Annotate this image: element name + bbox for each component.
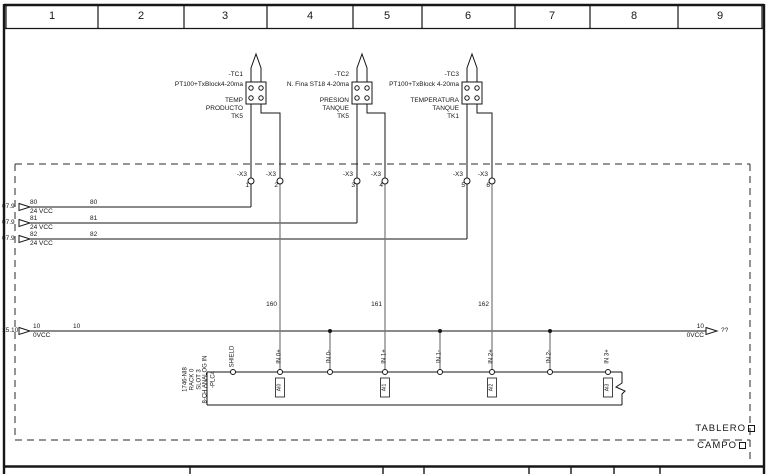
wire-160: 160 xyxy=(247,301,277,309)
plc-ch1-mark: AI1 xyxy=(382,380,389,396)
plc-in3p-label: IN 3+ xyxy=(604,339,613,373)
common-src: 15.10 xyxy=(2,327,18,335)
wire-162: 162 xyxy=(459,301,489,309)
common-end-volt: 0VCC xyxy=(666,332,704,340)
zone-field-label: CAMPO xyxy=(637,440,737,451)
plc-shield-label: SHIELD xyxy=(229,339,238,375)
ruler-cell-6: 6 xyxy=(448,10,488,22)
tc3-desc-2: TANQUE xyxy=(339,105,459,113)
schematic-sheet: 1 2 3 4 5 6 7 8 9 -TC1 PT100+TxBlock4-20… xyxy=(0,0,768,474)
ruler-cell-3: 3 xyxy=(205,10,245,22)
plc-module-box xyxy=(207,372,625,405)
supply-81-src: 07.9 xyxy=(2,219,15,227)
plc-tag: -PLC4 xyxy=(209,344,218,414)
x3-4-num: 4 xyxy=(353,182,383,190)
x3-6-name: -X3 xyxy=(458,171,488,179)
wire-161: 161 xyxy=(352,301,382,309)
supply-82-wire: 82 xyxy=(30,231,37,239)
common-volt: 0VCC xyxy=(33,332,50,340)
supply-80-src: 07.9 xyxy=(2,203,15,211)
zone-panel-marker xyxy=(748,425,755,432)
ruler-cell-5: 5 xyxy=(367,10,407,22)
common-dest: ?? xyxy=(721,327,728,335)
ruler-cell-4: 4 xyxy=(290,10,330,22)
x3-1-name: -X3 xyxy=(217,171,247,179)
tc3-type: PT100+TxBlock 4-20ma xyxy=(339,81,459,89)
tc1-tag: -TC1 xyxy=(123,71,243,79)
ruler-cell-9: 9 xyxy=(700,10,740,22)
tc2-desc-2: TANQUE xyxy=(229,105,349,113)
tc1-desc-3: TK5 xyxy=(123,113,243,121)
plc-in2m-label: IN 2- xyxy=(546,339,555,373)
x3-2-name: -X3 xyxy=(246,171,276,179)
ruler-cell-7: 7 xyxy=(532,10,572,22)
common-mid: 10 xyxy=(73,323,80,331)
supply-81-mid: 81 xyxy=(90,215,97,223)
tc1-desc-2: PRODUCTO xyxy=(123,105,243,113)
tc1-desc-1: TEMP xyxy=(123,97,243,105)
wires-gray xyxy=(280,184,550,370)
plc-in1p-label: IN 1+ xyxy=(381,339,390,373)
tc3-tag: -TC3 xyxy=(339,71,459,79)
tc2-desc-1: PRESION xyxy=(229,97,349,105)
supply-80-wire: 80 xyxy=(30,199,37,207)
plc-ch3-mark: AI3 xyxy=(605,380,612,396)
tc2-tag: -TC2 xyxy=(229,71,349,79)
ruler-cell-2: 2 xyxy=(121,10,161,22)
supply-82-src: 07.9 xyxy=(2,235,15,243)
zone-field-marker xyxy=(739,442,746,449)
plc-ch0-mark: AI0 xyxy=(277,380,284,396)
plc-in2p-label: IN 2+ xyxy=(488,339,497,373)
zone-panel-label: TABLERO xyxy=(646,423,746,434)
x3-4-name: -X3 xyxy=(351,171,381,179)
supply-81-wire: 81 xyxy=(30,215,37,223)
supply-82-volt: 24 VCC xyxy=(30,240,53,248)
plc-in0m-label: IN 0- xyxy=(326,339,335,373)
tc3-desc-1: TEMPERATURA xyxy=(339,97,459,105)
supply-80-mid: 80 xyxy=(90,199,97,207)
panel-boundary-dashed xyxy=(15,164,750,462)
plc-ch2-mark: AI2 xyxy=(489,380,496,396)
plc-in0p-label: IN 0+ xyxy=(276,339,285,373)
tc1-type: PT100+TxBlock4-20ma xyxy=(123,81,243,89)
tc2-desc-3: TK5 xyxy=(229,113,349,121)
common-wire: 10 xyxy=(33,323,40,331)
x3-3-num: 3 xyxy=(325,182,355,190)
ruler-cell-8: 8 xyxy=(614,10,654,22)
wires-black xyxy=(30,104,706,331)
x3-6-num: 6 xyxy=(460,182,490,190)
tc3-desc-3: TK1 xyxy=(339,113,459,121)
plc-in1m-label: IN 1- xyxy=(436,339,445,373)
x3-2-num: 2 xyxy=(248,182,278,190)
x3-3-name: -X3 xyxy=(323,171,353,179)
bottom-strip xyxy=(190,467,660,474)
common-end-wire: 10 xyxy=(676,323,704,331)
x3-1-num: 1 xyxy=(219,182,249,190)
tc2-type: N. Fina ST18 4-20ma xyxy=(229,81,349,89)
ruler-cell-1: 1 xyxy=(32,10,72,22)
supply-82-mid: 82 xyxy=(90,231,97,239)
